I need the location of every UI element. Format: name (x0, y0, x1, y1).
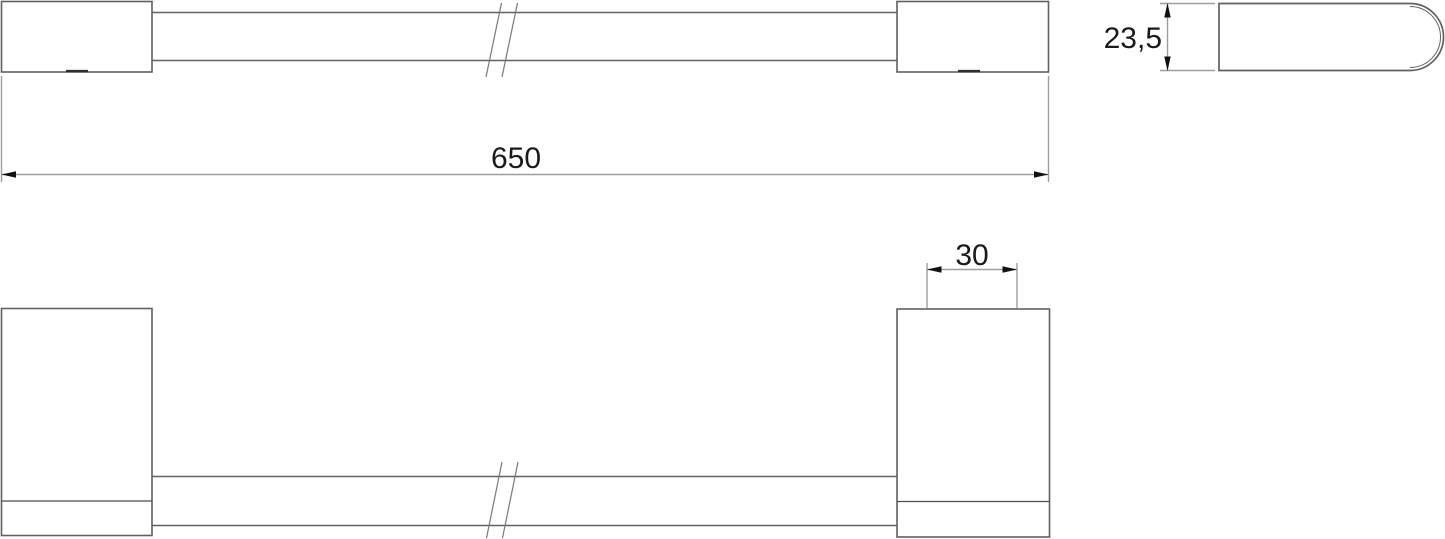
plan-top-view (2, 309, 1050, 538)
arrowhead-up (1164, 3, 1170, 18)
arrowhead-right (1003, 266, 1018, 272)
front-left-bracket (2, 2, 153, 73)
plan-detail-edges (2, 501, 1050, 502)
arrowhead-down (1164, 57, 1170, 72)
dimension-label-width: 30 (955, 239, 988, 272)
break-line (486, 3, 502, 77)
arrowhead-right (1034, 171, 1049, 177)
plan-right-bracket (897, 309, 1050, 537)
dimension-label-length: 650 (491, 142, 541, 175)
drawing-page: 650 23,5 (0, 0, 1445, 539)
break-line (502, 3, 518, 77)
break-line (503, 462, 519, 538)
plan-break-symbol (487, 462, 519, 538)
technical-drawing: 650 23,5 (0, 0, 1445, 539)
bracket-profile-outline (1219, 4, 1443, 71)
side-profile-view (1219, 4, 1443, 71)
front-right-bracket (897, 2, 1049, 73)
arrowhead-left (2, 171, 17, 177)
front-break-symbol (486, 3, 518, 77)
front-elevation-view (2, 2, 1049, 73)
arrowhead-left (927, 266, 942, 272)
break-line (487, 462, 503, 538)
dimension-label-height: 23,5 (1104, 22, 1162, 55)
